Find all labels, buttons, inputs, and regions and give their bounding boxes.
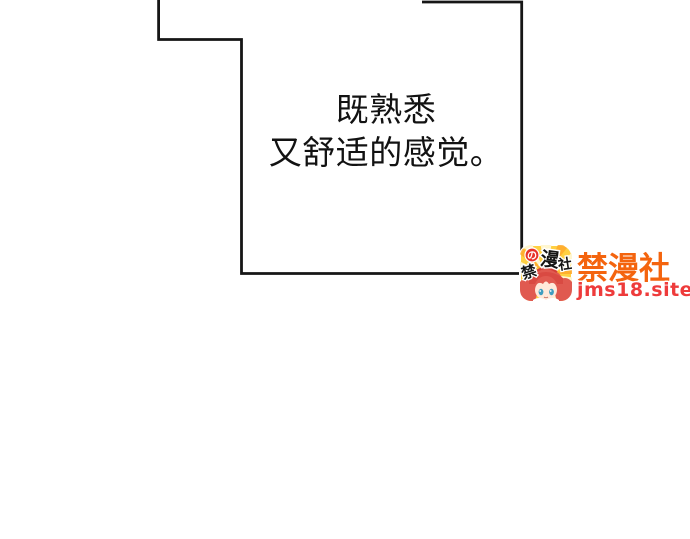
dialogue-line-2: 又舒适的感觉。 <box>240 133 532 176</box>
jmcomic-logo-icon: 漫 社 禁 の <box>519 244 573 302</box>
watermark-site-url: jms18.site <box>577 279 690 301</box>
logo-char-she: 社 <box>556 255 573 274</box>
dialogue-line-1: 既熟悉 <box>240 90 532 133</box>
logo-char-no: の <box>527 251 537 262</box>
dialogue-text: 既熟悉 又舒适的感觉。 <box>240 90 532 176</box>
watermark: 漫 社 禁 の 禁漫社 jms18.site <box>519 244 690 304</box>
